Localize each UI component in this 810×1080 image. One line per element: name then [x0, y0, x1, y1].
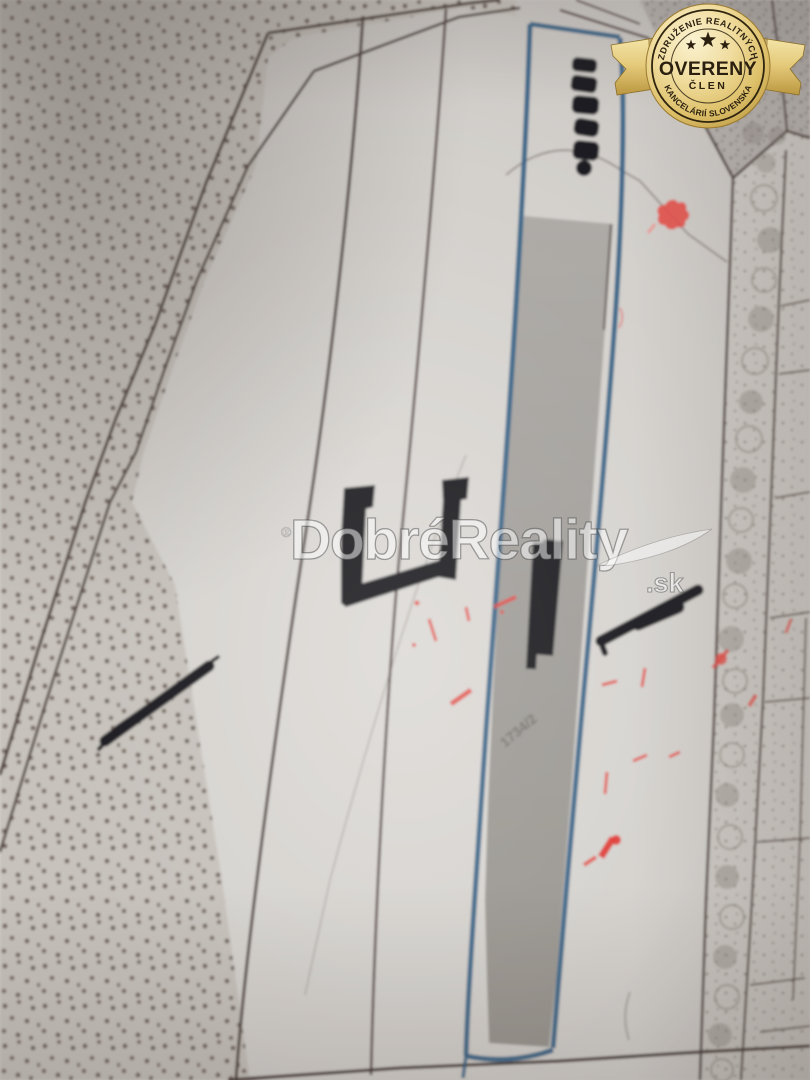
svg-text:OVERENÝ: OVERENÝ — [659, 56, 757, 80]
svg-text:.sk: .sk — [646, 568, 685, 598]
svg-text:DobréReality: DobréReality — [290, 508, 629, 572]
svg-text:ČLEN: ČLEN — [689, 79, 728, 92]
